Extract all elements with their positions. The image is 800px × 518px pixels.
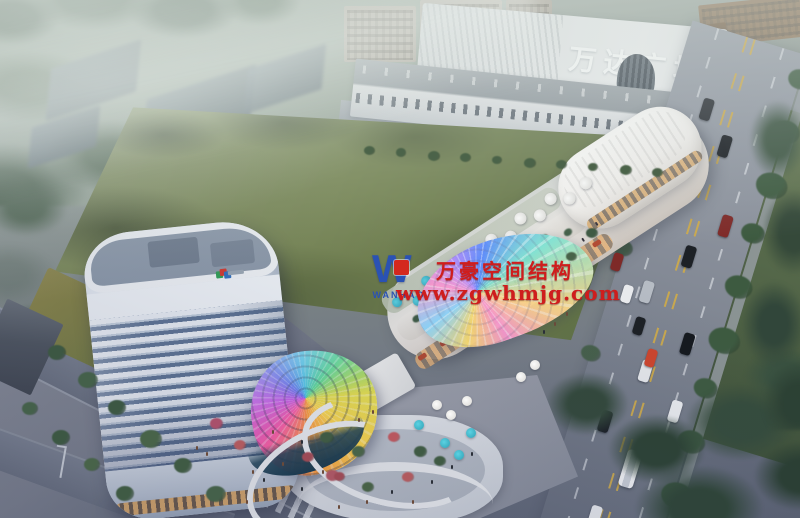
tree	[524, 158, 536, 168]
aerial-rendering: 万达广场	[0, 0, 800, 518]
tree	[334, 472, 345, 481]
tree	[174, 458, 192, 473]
umbrella	[454, 450, 464, 460]
rooftop-plant	[147, 237, 200, 268]
tree	[388, 432, 400, 442]
tree	[108, 400, 126, 415]
dense-trees-east	[738, 100, 800, 430]
tree	[140, 430, 162, 448]
person	[282, 462, 284, 466]
tree	[396, 148, 406, 156]
person	[581, 238, 585, 242]
person	[431, 480, 433, 484]
person	[451, 465, 453, 469]
tree	[52, 430, 70, 445]
tree	[566, 252, 577, 261]
tree	[364, 146, 375, 155]
tree	[620, 165, 632, 175]
person	[391, 490, 393, 494]
rooftop-plant	[210, 239, 255, 267]
tree	[22, 402, 38, 415]
person	[263, 478, 265, 482]
car	[716, 134, 733, 158]
watermark-url: www.zgwhmjg.com	[396, 281, 621, 305]
person	[322, 470, 324, 474]
person	[246, 500, 248, 504]
apartment-tower	[344, 6, 416, 62]
tree	[492, 156, 502, 164]
person	[372, 410, 374, 414]
tree	[652, 168, 663, 177]
tree	[402, 472, 414, 482]
umbrella	[462, 396, 472, 406]
person	[301, 440, 303, 444]
tree	[234, 440, 246, 450]
tree	[352, 446, 365, 457]
tree	[362, 482, 374, 492]
umbrella	[530, 360, 540, 370]
umbrella	[466, 428, 476, 438]
tree	[434, 456, 446, 466]
person	[301, 487, 303, 491]
car	[698, 97, 715, 121]
tree	[586, 228, 598, 238]
person	[543, 330, 545, 334]
umbrella	[432, 400, 442, 410]
person	[196, 446, 198, 450]
tree	[302, 452, 314, 462]
tree	[116, 486, 134, 501]
umbrella	[516, 372, 526, 382]
warehouse-building	[244, 43, 327, 114]
person	[272, 430, 274, 434]
person	[366, 500, 368, 504]
person	[206, 452, 208, 456]
tree	[786, 66, 800, 92]
tree	[210, 418, 223, 429]
car	[717, 214, 734, 238]
tree	[84, 458, 100, 471]
tree	[428, 151, 440, 161]
tree	[588, 163, 598, 171]
wanhao-logo-badge	[394, 260, 409, 275]
umbrella	[440, 438, 450, 448]
person	[358, 418, 360, 422]
person	[252, 470, 254, 474]
tree	[414, 446, 427, 457]
watermark-company-name: 万豪空间结构	[436, 255, 574, 284]
watermark: W WANHAO 万豪空间结构 www.zgwhmjg.com	[366, 250, 596, 314]
person	[338, 505, 340, 509]
tree	[48, 345, 66, 360]
person	[412, 500, 414, 504]
person	[554, 322, 556, 326]
umbrella	[446, 410, 456, 420]
person	[566, 312, 568, 316]
umbrella	[414, 420, 424, 430]
person	[471, 452, 473, 456]
